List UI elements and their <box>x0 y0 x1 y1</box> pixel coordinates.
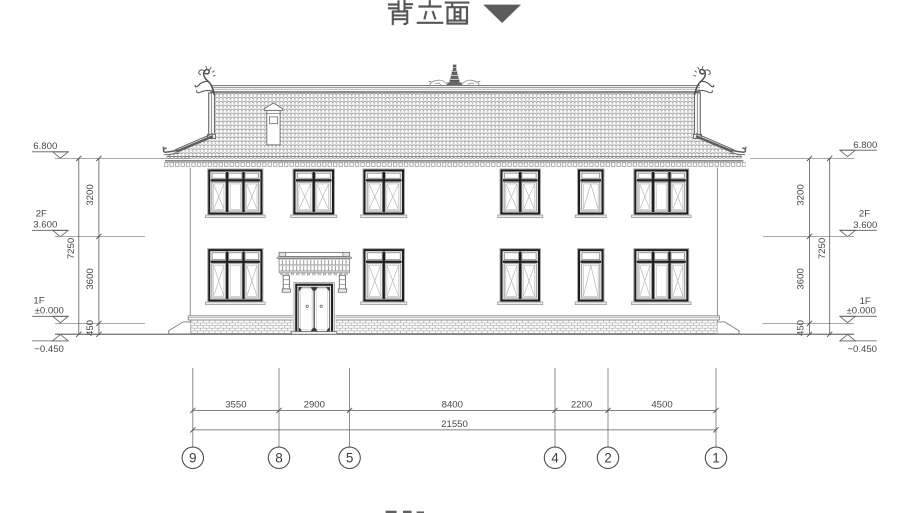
svg-text:3.600: 3.600 <box>33 220 57 231</box>
svg-text:−0.450: −0.450 <box>34 344 64 355</box>
svg-text:1: 1 <box>712 451 720 466</box>
svg-text:4: 4 <box>551 451 559 466</box>
svg-text:−0.450: −0.450 <box>847 344 877 355</box>
svg-text:8400: 8400 <box>442 400 463 411</box>
svg-text:7250: 7250 <box>66 238 77 259</box>
svg-text:2F: 2F <box>859 209 870 220</box>
svg-text:6.800: 6.800 <box>33 141 57 152</box>
svg-text:2900: 2900 <box>304 400 325 411</box>
svg-text:6.800: 6.800 <box>853 140 877 151</box>
svg-text:7250: 7250 <box>817 238 828 259</box>
svg-text:3600: 3600 <box>85 268 96 289</box>
svg-text:±0.000: ±0.000 <box>847 305 876 316</box>
svg-text:3.600: 3.600 <box>853 220 877 231</box>
svg-text:3600: 3600 <box>796 268 807 289</box>
svg-text:4500: 4500 <box>651 400 672 411</box>
svg-text:2F: 2F <box>36 209 47 220</box>
svg-text:2: 2 <box>604 451 612 466</box>
svg-text:±0.000: ±0.000 <box>35 305 64 316</box>
svg-text:21550: 21550 <box>441 419 468 430</box>
svg-text:9: 9 <box>189 451 197 466</box>
svg-text:2200: 2200 <box>571 400 592 411</box>
svg-text:450: 450 <box>85 320 96 336</box>
svg-text:8: 8 <box>275 451 283 466</box>
svg-text:3200: 3200 <box>796 184 807 205</box>
svg-text:5: 5 <box>346 451 354 466</box>
svg-text:450: 450 <box>796 320 807 336</box>
svg-text:3550: 3550 <box>225 400 246 411</box>
svg-text:3200: 3200 <box>85 184 96 205</box>
